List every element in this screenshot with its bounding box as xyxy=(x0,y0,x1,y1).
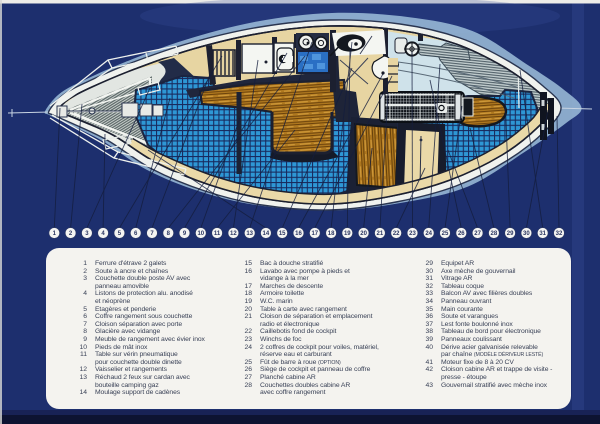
svg-text:17: 17 xyxy=(311,231,318,237)
svg-text:29: 29 xyxy=(507,231,514,237)
svg-text:19: 19 xyxy=(344,231,351,237)
svg-text:18: 18 xyxy=(328,231,335,237)
svg-text:28: 28 xyxy=(491,231,498,237)
svg-text:32: 32 xyxy=(556,231,563,237)
svg-text:14: 14 xyxy=(263,231,270,237)
svg-text:12: 12 xyxy=(230,231,237,237)
svg-text:21: 21 xyxy=(377,231,384,237)
svg-text:11: 11 xyxy=(214,231,221,237)
svg-text:13: 13 xyxy=(246,231,253,237)
svg-text:15: 15 xyxy=(279,231,286,237)
svg-text:30: 30 xyxy=(523,231,530,237)
svg-text:22: 22 xyxy=(393,231,400,237)
svg-text:24: 24 xyxy=(425,231,432,237)
svg-text:27: 27 xyxy=(474,231,481,237)
svg-text:26: 26 xyxy=(458,231,465,237)
svg-text:25: 25 xyxy=(442,231,449,237)
svg-text:20: 20 xyxy=(360,231,367,237)
svg-text:10: 10 xyxy=(197,231,204,237)
svg-text:23: 23 xyxy=(409,231,416,237)
svg-text:16: 16 xyxy=(295,231,302,237)
svg-text:31: 31 xyxy=(539,231,546,237)
